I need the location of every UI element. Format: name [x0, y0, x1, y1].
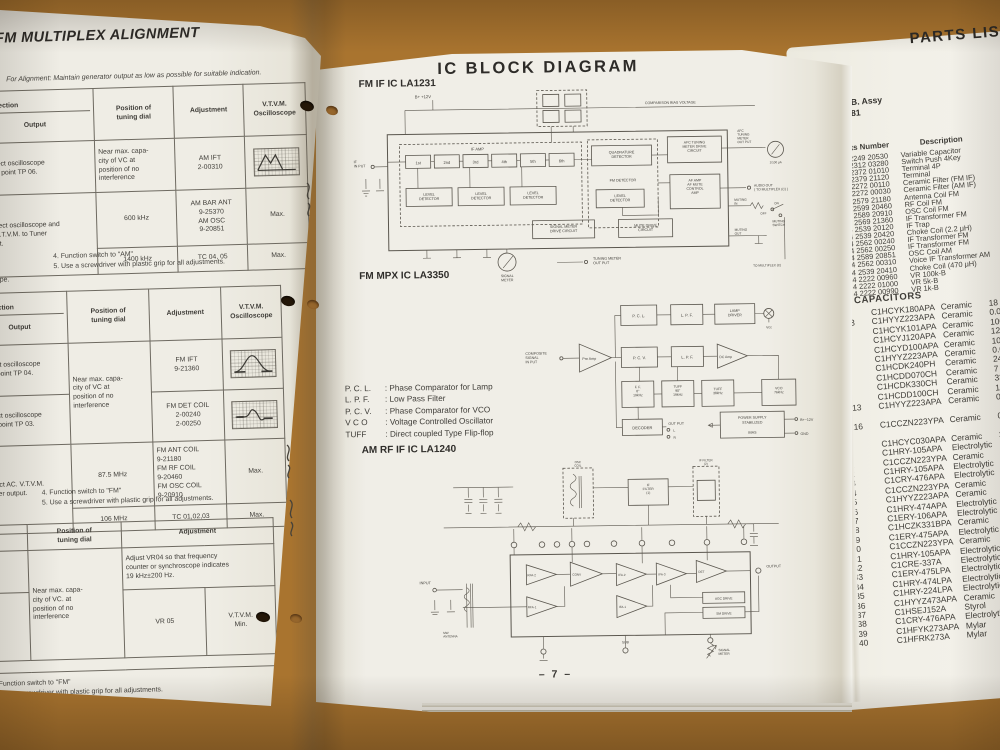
cut-text-fragment: ope. — [0, 276, 9, 283]
label-pre-amp: Pre Amp — [582, 357, 596, 361]
label-agc-drive: AGC DRIVE — [715, 596, 733, 600]
page-title-fm-multiplex-alignment: FM MULTIPLEX ALIGNMENT — [0, 25, 200, 47]
table-cell: Connect oscilloscope to test point TP 03… — [0, 394, 71, 447]
parts-number-cell: C1HYYZ223APA — [878, 397, 942, 411]
col-header-position: Position of tuning dial — [93, 86, 174, 140]
alignment-note: For Alignment: Maintain generator output… — [6, 69, 261, 83]
table-cell: FM IFT 9-21360 — [150, 339, 223, 392]
label-fm-detector: FM DETECTOR — [610, 178, 637, 182]
label-level-detector: LEVELDETECTOR — [610, 194, 631, 203]
col-header-position: Position of tuning dial — [67, 289, 150, 343]
label-sm-drive: SM DRIVE — [716, 611, 731, 615]
center-page: IC BLOCK DIAGRAM FM IF IC LA1231 B+ +12V… — [312, 44, 852, 716]
label-mute-drive: MUTE DRIVECIRCUIT — [634, 223, 657, 232]
label-det: DET — [698, 570, 704, 574]
table-cell: AM BAR ANT 9-25370 AM OSC 9-20851 — [176, 188, 248, 246]
label-off: OFF — [760, 211, 766, 215]
label-tuff-38: TUFF38kHz — [713, 387, 723, 395]
am-alignment-table: Connection Output Position of tuning dia… — [0, 82, 311, 278]
label-if-filter-2: IF FILTER(2) — [699, 458, 714, 466]
table-cell — [0, 551, 29, 594]
label-meter-scale: 1/100 μA — [770, 160, 782, 164]
signal-meter-icon — [498, 253, 516, 271]
page-number: – 7 – — [539, 668, 573, 680]
label-comparison-bias-voltage: COMPARISON BIAS VOLTAGE — [645, 100, 697, 105]
label-output: OUT PUT — [668, 422, 685, 426]
label-signal-meter-drive: SIGNAL METERDRIVE CIRCUIT — [550, 225, 578, 234]
label-output-l: L — [673, 429, 675, 433]
label-vco: VCO76kHz — [774, 386, 784, 394]
label-if-amp: IF AMP — [471, 146, 485, 151]
table-cell: AM IFT 2-00310 — [174, 136, 245, 190]
label-rfa1: RFA-1 — [528, 605, 537, 609]
diagram-label-la3350: FM MPX IC LA3350 — [359, 270, 449, 282]
label-on: ON — [774, 201, 779, 205]
oscilloscope-waveform-peak-icon — [229, 349, 276, 378]
col-header-blank — [0, 525, 28, 552]
label-if-input: IFIN PUT — [354, 160, 367, 168]
fm-mpx-ic-la3350-diagram: COMPOSITESIGNALIN PUT Pre Amp P. C. L. L… — [520, 290, 852, 447]
label-stabilized: STABILIZED — [742, 421, 763, 425]
label-level-detector: LEVELDETECTOR — [523, 191, 544, 200]
label-muting-switch: MUTINGSWITCH — [772, 219, 785, 227]
label-gnd: GND — [800, 432, 808, 436]
legend-term: L. P. F. — [345, 394, 385, 406]
table-cell: 600 kHz — [96, 190, 178, 248]
label-b-plus-12v: B+ +12V — [415, 94, 432, 99]
table-cell: FM DET COIL 2-00240 2-00250 — [151, 390, 224, 443]
label-ff: F. F.0°19kHz — [633, 385, 643, 397]
type-cell: Ceramic — [948, 394, 980, 406]
label-afc-tuning-meter-output: AFCTUNINGMETEROUT PUT — [737, 129, 751, 145]
type-cell: Mylar — [966, 629, 987, 640]
label-af-amp-mute-control: AF AMPAF MUTECONTROLAMP — [686, 178, 703, 195]
table-cell: Near max. capa- city of VC. at position … — [28, 548, 125, 661]
table-cell: Max. — [247, 243, 310, 271]
type-cell: Ceramic — [949, 413, 981, 425]
label-signal-meter: SIGNALMETER — [718, 648, 730, 656]
legend-definition: : Direct coupled Type Flip-flop — [385, 427, 493, 440]
label-quadrature-detector: QUADRATUREDETECTOR — [609, 150, 635, 159]
value-cell: 0.022 μF 50V — [996, 389, 1000, 403]
mpx-alignment-table: Position of tuning dial Adjustment Near … — [0, 517, 278, 674]
center-page-content: IC BLOCK DIAGRAM FM IF IC LA1231 B+ +12V… — [312, 40, 861, 719]
legend-term: P. C. V. — [345, 406, 385, 418]
table-cell: Connect oscilloscope to test point TP 04… — [0, 343, 69, 396]
label-ifa3: IFA-3 — [658, 572, 666, 576]
label-bias: BIAS — [748, 431, 757, 435]
footnote: 4. Function switch to "FM" — [0, 679, 71, 688]
table-cell: Near max. capa- city of VC at position o… — [68, 341, 153, 445]
table-cell: Adjust VR04 so that frequency counter or… — [122, 544, 275, 590]
label-to-multiplex: TO MULTIPLEX (C) — [753, 263, 781, 267]
label-composite-signal-input: COMPOSITESIGNALIN PUT — [525, 352, 547, 365]
label-osc-coil: OSCCOIL — [574, 460, 582, 468]
label-pcv: P. C. V. — [633, 355, 646, 360]
label-b-12v: B+~12V — [800, 418, 814, 422]
label-input: INPUT — [419, 581, 431, 585]
col-header-vtvm: V.T.V.M. Oscilloscope — [243, 83, 306, 137]
label-decoder: DECODER — [632, 425, 652, 430]
legend-term: TUFF — [345, 428, 385, 440]
col-header-connection: Connection Output — [0, 89, 94, 144]
label-sub: SUB — [622, 640, 630, 644]
label-power-supply: POWER SUPPLY — [738, 415, 767, 419]
label-pcl: P. C. L. — [632, 313, 645, 318]
label-ifa2: IFA-2 — [618, 573, 626, 577]
connection-label: Connection — [0, 302, 64, 316]
abbreviation-legend: P. C. L.: Phase Comparator for Lamp L. P… — [345, 381, 494, 440]
label-output: OUTPUT — [766, 564, 782, 568]
col-header-adjustment: Adjustment — [173, 84, 244, 138]
table-cell — [0, 592, 31, 661]
connection-label: Connection — [0, 99, 90, 114]
staple-mark — [283, 444, 295, 480]
label-if-filter-1: IFFILTER(1) — [643, 483, 655, 495]
ic-boundary-la1240 — [510, 552, 751, 637]
label-afc-tuning-meter-drive: AFC TUNINGMETER DRIVECIRCUIT — [682, 140, 707, 153]
oscilloscope-waveform-scurve-icon — [231, 400, 278, 429]
label-level-detector: LEVELDETECTOR — [419, 193, 440, 202]
am-rf-if-ic-la1240-diagram: OSCCOIL IFFILTER(1) IF FILTER(2) RFA-2 R… — [413, 455, 796, 666]
label-muting-in: MUTINGIN — [734, 198, 747, 206]
if-stage-label: 3rd — [473, 159, 479, 164]
col-header-connection: Connection Output — [0, 291, 68, 346]
label-conv: CONV — [572, 573, 581, 577]
table-cell: Connect oscilloscope to test point TP 06… — [0, 141, 96, 196]
parts-number-cell: C1HFRK273A — [897, 632, 951, 646]
table-cell — [222, 337, 283, 389]
label-lamp-driver: LAMPDRIVER — [728, 309, 742, 318]
table-cell: Max. — [225, 439, 287, 505]
table-cell: Max. — [246, 187, 310, 245]
label-rfa2: RFA-2 — [527, 573, 536, 577]
if-stage-label: 1st — [415, 160, 421, 165]
label-level-detector: LEVELDETECTOR — [471, 192, 492, 201]
label-tuff-90: TUFF90°19kHz — [673, 385, 683, 397]
label-audio-out: AUDIO OUT( TO MULTIPLEX (C) ) — [754, 183, 788, 191]
col-header-position: Position of tuning dial — [27, 522, 122, 551]
table-cell — [244, 135, 307, 189]
osc-coil-block — [563, 468, 594, 518]
col-header-vtvm: V.T.V.M. Oscilloscope — [221, 285, 282, 339]
if-stage-label: 6th — [559, 158, 565, 163]
legend-term: P. C. L. — [345, 383, 385, 395]
label-vcc: Vcc — [766, 325, 772, 329]
table-cell: VR 05 — [123, 588, 207, 658]
label-ifa1: IFA-1 — [619, 605, 627, 609]
if-stage-label: 4th — [501, 159, 507, 164]
if-stage-label: 2nd — [443, 160, 450, 165]
diagram-label-la1240: AM RF IF IC LA1240 — [362, 444, 457, 456]
label-dc-amp: DC Amp — [719, 355, 732, 359]
legend-definition: : Phase Comparator for Lamp — [385, 381, 493, 394]
label-signal-meter: SIGNALMETER — [501, 274, 514, 282]
page-title-ic-block-diagram: IC BLOCK DIAGRAM — [437, 57, 639, 79]
label-tuning-meter-output: TUNING METEROUT PUT — [593, 256, 622, 265]
label-lpf: L. P. F. — [681, 312, 693, 317]
staple-mark — [303, 182, 315, 218]
output-label: Output — [0, 120, 91, 134]
legend-term: V C O — [345, 417, 385, 429]
oscilloscope-waveform-am-icon — [253, 147, 300, 176]
col-header-adjustment: Adjustment — [149, 287, 222, 341]
output-label: Output — [0, 322, 64, 335]
legend-definition: : Low Pass Filter — [385, 393, 446, 405]
fm-if-ic-la1231-diagram: B+ +12V COMPARISON BIAS VOLTAGE IF AMP 1… — [345, 83, 808, 287]
label-mw-antenna: MWANTENNA — [443, 631, 457, 639]
table-cell: Near max. capa- city of VC at position o… — [94, 138, 175, 192]
table-cell — [223, 388, 284, 440]
label-muting-out: MUTINGOUT — [735, 228, 748, 236]
if-stage-label: 5th — [530, 159, 536, 164]
label-lpf: L. P. F. — [681, 354, 693, 359]
label-output-r: R — [673, 436, 676, 440]
staple-mark — [286, 498, 298, 538]
